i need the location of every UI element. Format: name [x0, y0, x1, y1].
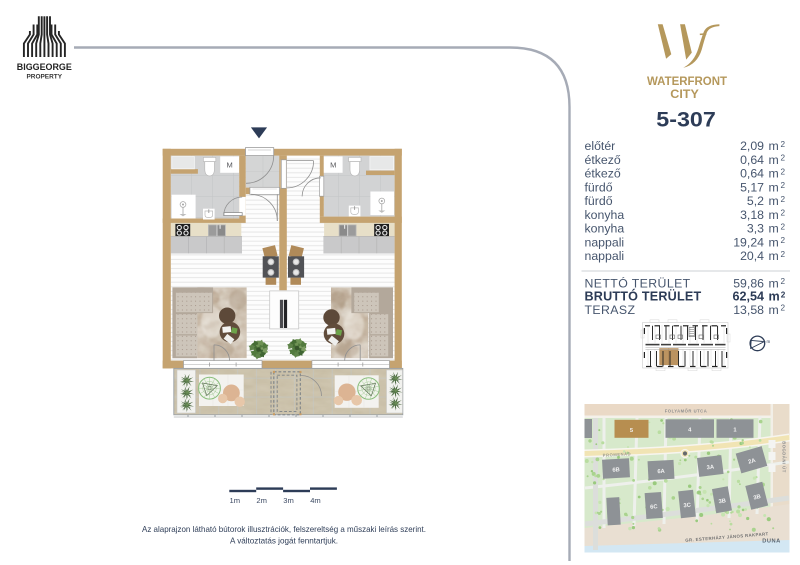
- svg-text:3m: 3m: [283, 496, 294, 505]
- svg-text:DUNA: DUNA: [762, 539, 780, 545]
- svg-text:nappali: nappali: [585, 235, 625, 249]
- svg-text:2: 2: [781, 140, 786, 149]
- svg-text:2: 2: [781, 181, 786, 190]
- svg-text:6B: 6B: [612, 467, 620, 473]
- svg-text:2: 2: [781, 154, 786, 163]
- svg-text:2: 2: [781, 195, 786, 204]
- svg-text:étkező: étkező: [585, 153, 621, 167]
- svg-text:BOGDÁNI ÚT: BOGDÁNI ÚT: [782, 441, 787, 473]
- svg-text:6A: 6A: [657, 469, 666, 475]
- svg-text:konyha: konyha: [585, 222, 625, 236]
- svg-text:m: m: [769, 153, 779, 167]
- svg-text:BIGGEORGE: BIGGEORGE: [17, 62, 72, 72]
- svg-text:59,86: 59,86: [733, 276, 764, 290]
- svg-text:19,24: 19,24: [733, 235, 764, 249]
- svg-text:NETTÓ TERÜLET: NETTÓ TERÜLET: [585, 275, 691, 290]
- svg-text:2,09: 2,09: [740, 139, 764, 153]
- svg-text:2: 2: [781, 222, 786, 231]
- svg-text:BRUTTÓ TERÜLET: BRUTTÓ TERÜLET: [585, 289, 702, 304]
- svg-text:m: m: [769, 208, 779, 222]
- svg-text:m: m: [769, 276, 779, 290]
- svg-text:3C: 3C: [683, 503, 692, 510]
- svg-text:3,3: 3,3: [747, 222, 764, 236]
- svg-text:62,54: 62,54: [732, 290, 764, 304]
- svg-text:Az alaprajzon látható bútorok: Az alaprajzon látható bútorok illusztrác…: [142, 524, 426, 534]
- svg-text:m: m: [769, 222, 779, 236]
- svg-text:3,18: 3,18: [740, 208, 764, 222]
- svg-text:CITY: CITY: [670, 87, 699, 101]
- svg-text:m: m: [769, 303, 779, 317]
- svg-text:0,64: 0,64: [740, 153, 764, 167]
- svg-text:m: m: [769, 235, 779, 249]
- svg-text:2: 2: [781, 277, 786, 286]
- svg-text:étkező: étkező: [585, 167, 621, 181]
- svg-text:m: m: [769, 167, 779, 181]
- svg-text:TERASZ: TERASZ: [585, 303, 636, 317]
- svg-text:PROPERTY: PROPERTY: [27, 73, 63, 80]
- svg-text:6C: 6C: [650, 504, 659, 511]
- svg-text:M: M: [330, 161, 336, 170]
- svg-text:fürdő: fürdő: [585, 194, 613, 208]
- svg-text:fürdő: fürdő: [585, 180, 613, 194]
- svg-text:M: M: [226, 161, 232, 170]
- svg-text:2: 2: [781, 290, 786, 299]
- svg-text:5,17: 5,17: [740, 180, 764, 194]
- svg-text:2: 2: [781, 304, 786, 313]
- svg-text:nappali: nappali: [585, 249, 625, 263]
- svg-text:2m: 2m: [256, 496, 267, 505]
- svg-text:konyha: konyha: [585, 208, 625, 222]
- svg-text:0,64: 0,64: [740, 167, 764, 181]
- svg-text:5,2: 5,2: [747, 194, 764, 208]
- svg-text:A változtatás jogát fenntartju: A változtatás jogát fenntartjuk.: [230, 536, 338, 546]
- svg-text:2: 2: [781, 250, 786, 259]
- svg-text:5-307: 5-307: [656, 108, 716, 132]
- svg-text:m: m: [769, 194, 779, 208]
- svg-text:előtér: előtér: [585, 139, 616, 153]
- svg-text:2: 2: [781, 167, 786, 176]
- svg-text:2: 2: [781, 236, 786, 245]
- svg-text:m: m: [769, 249, 779, 263]
- svg-text:2: 2: [781, 209, 786, 218]
- svg-text:4m: 4m: [310, 496, 321, 505]
- svg-text:1m: 1m: [230, 496, 241, 505]
- svg-text:13,58: 13,58: [733, 303, 764, 317]
- svg-text:m: m: [767, 339, 771, 344]
- svg-text:3B: 3B: [718, 498, 726, 505]
- svg-text:m: m: [769, 180, 779, 194]
- svg-text:m: m: [769, 290, 780, 304]
- svg-text:20,4: 20,4: [740, 249, 764, 263]
- svg-text:m: m: [769, 139, 779, 153]
- svg-text:FOLYAMŐR UTCA: FOLYAMŐR UTCA: [665, 409, 707, 414]
